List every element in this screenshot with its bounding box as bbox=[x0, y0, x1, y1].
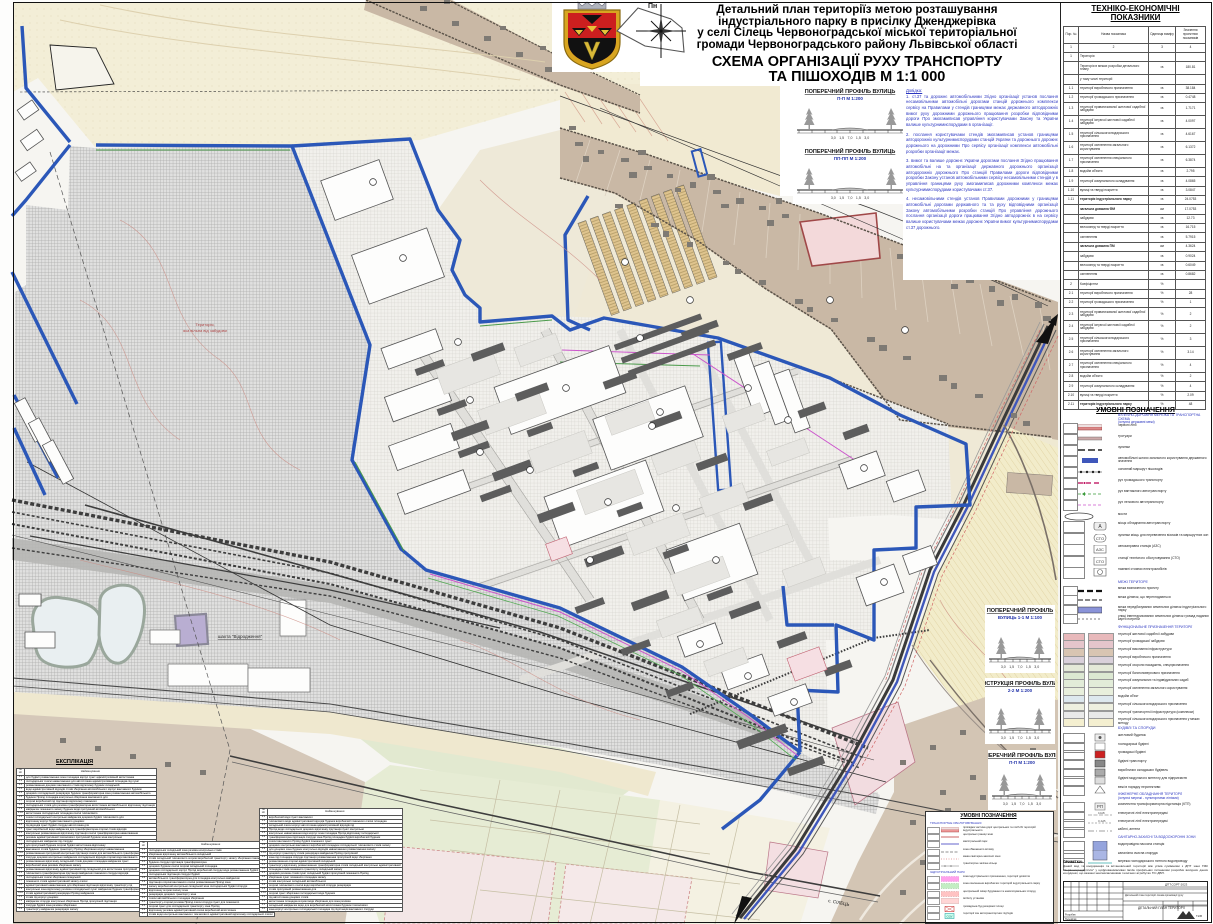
svg-text:ПОПЕРЕЧНИЙ ПРОФІЛЬ ВУЛИЦЬ: ПОПЕРЕЧНИЙ ПРОФІЛЬ ВУЛИЦЬ bbox=[805, 147, 896, 155]
svg-text:3,0 1,5 7,0 1,5 3,0: 3,0 1,5 7,0 1,5 3,0 bbox=[831, 136, 869, 140]
svg-text:Перевірив: Перевірив bbox=[1065, 918, 1077, 921]
svg-text:ДЕТАЛЬНИЙ ПЛАН ТЕРИТОРІЇ: ДЕТАЛЬНИЙ ПЛАН ТЕРИТОРІЇ bbox=[1138, 906, 1185, 910]
svg-text:СТО: СТО bbox=[1096, 559, 1104, 564]
svg-text:ПОПЕРЕЧНИЙ ПРОФІЛЬ ВУЛИЦЬ: ПОПЕРЕЧНИЙ ПРОФІЛЬ ВУЛИЦЬ bbox=[988, 751, 1056, 759]
svg-text:3,0 1,5 7,0 1,5 3,0: 3,0 1,5 7,0 1,5 3,0 bbox=[1003, 802, 1041, 806]
svg-text:РП: РП bbox=[1097, 804, 1103, 809]
svg-text:ПОПЕРЕЧНИЙ ПРОФІЛЬ ВУЛИЦЬ: ПОПЕРЕЧНИЙ ПРОФІЛЬ ВУЛИЦЬ bbox=[805, 87, 896, 95]
svg-text:0.4кВ: 0.4кВ bbox=[1098, 819, 1105, 823]
svg-text:3,0 1,5 7,0 1,5 3,0: 3,0 1,5 7,0 1,5 3,0 bbox=[1001, 665, 1039, 669]
svg-text:ПП-ПП М 1:200: ПП-ПП М 1:200 bbox=[834, 156, 867, 161]
svg-text:ВУЛИЦЬ 1-1 М 1:100: ВУЛИЦЬ 1-1 М 1:100 bbox=[998, 615, 1043, 620]
svg-text:ТзОВ: ТзОВ bbox=[1196, 915, 1202, 918]
svg-text:ДПТ.СОРТ-2023: ДПТ.СОРТ-2023 bbox=[1165, 883, 1188, 887]
svg-text:Територія,: Територія, bbox=[195, 322, 214, 327]
svg-text:2-2 М 1:200: 2-2 М 1:200 bbox=[1008, 688, 1033, 693]
svg-text:3,0 1,5 7,0 1,5 3,0: 3,0 1,5 7,0 1,5 3,0 bbox=[1001, 736, 1039, 740]
svg-text:3,0 1,5 7,0 1,5 3,0: 3,0 1,5 7,0 1,5 3,0 bbox=[831, 196, 869, 200]
svg-text:ОЗУ: ОЗУ bbox=[946, 915, 952, 919]
svg-text:СТО: СТО bbox=[1096, 536, 1104, 541]
svg-text:шахта "Відродження": шахта "Відродження" bbox=[218, 634, 263, 639]
svg-text:ПОПЕРЕЧНИЙ ПРОФІЛЬ: ПОПЕРЕЧНИЙ ПРОФІЛЬ bbox=[987, 606, 1053, 614]
svg-text:АЗС: АЗС bbox=[1096, 547, 1104, 552]
svg-text:Пн: Пн bbox=[648, 3, 657, 10]
svg-text:П-П М 1:200: П-П М 1:200 bbox=[837, 96, 863, 101]
svg-text:Розробив: Розробив bbox=[1065, 914, 1076, 917]
svg-text:КОНСТРУКЦІЯ ПРОФІЛЬ ВУЛИЦЬ: КОНСТРУКЦІЯ ПРОФІЛЬ ВУЛИЦЬ bbox=[985, 681, 1055, 687]
svg-text:яка вільна від забудови: яка вільна від забудови bbox=[183, 328, 227, 333]
svg-text:Детальний план території схема: Детальний план території схема організац… bbox=[1125, 893, 1184, 897]
svg-text:П-П М 1:200: П-П М 1:200 bbox=[1009, 760, 1035, 765]
svg-text:10кВ: 10кВ bbox=[1098, 811, 1105, 815]
